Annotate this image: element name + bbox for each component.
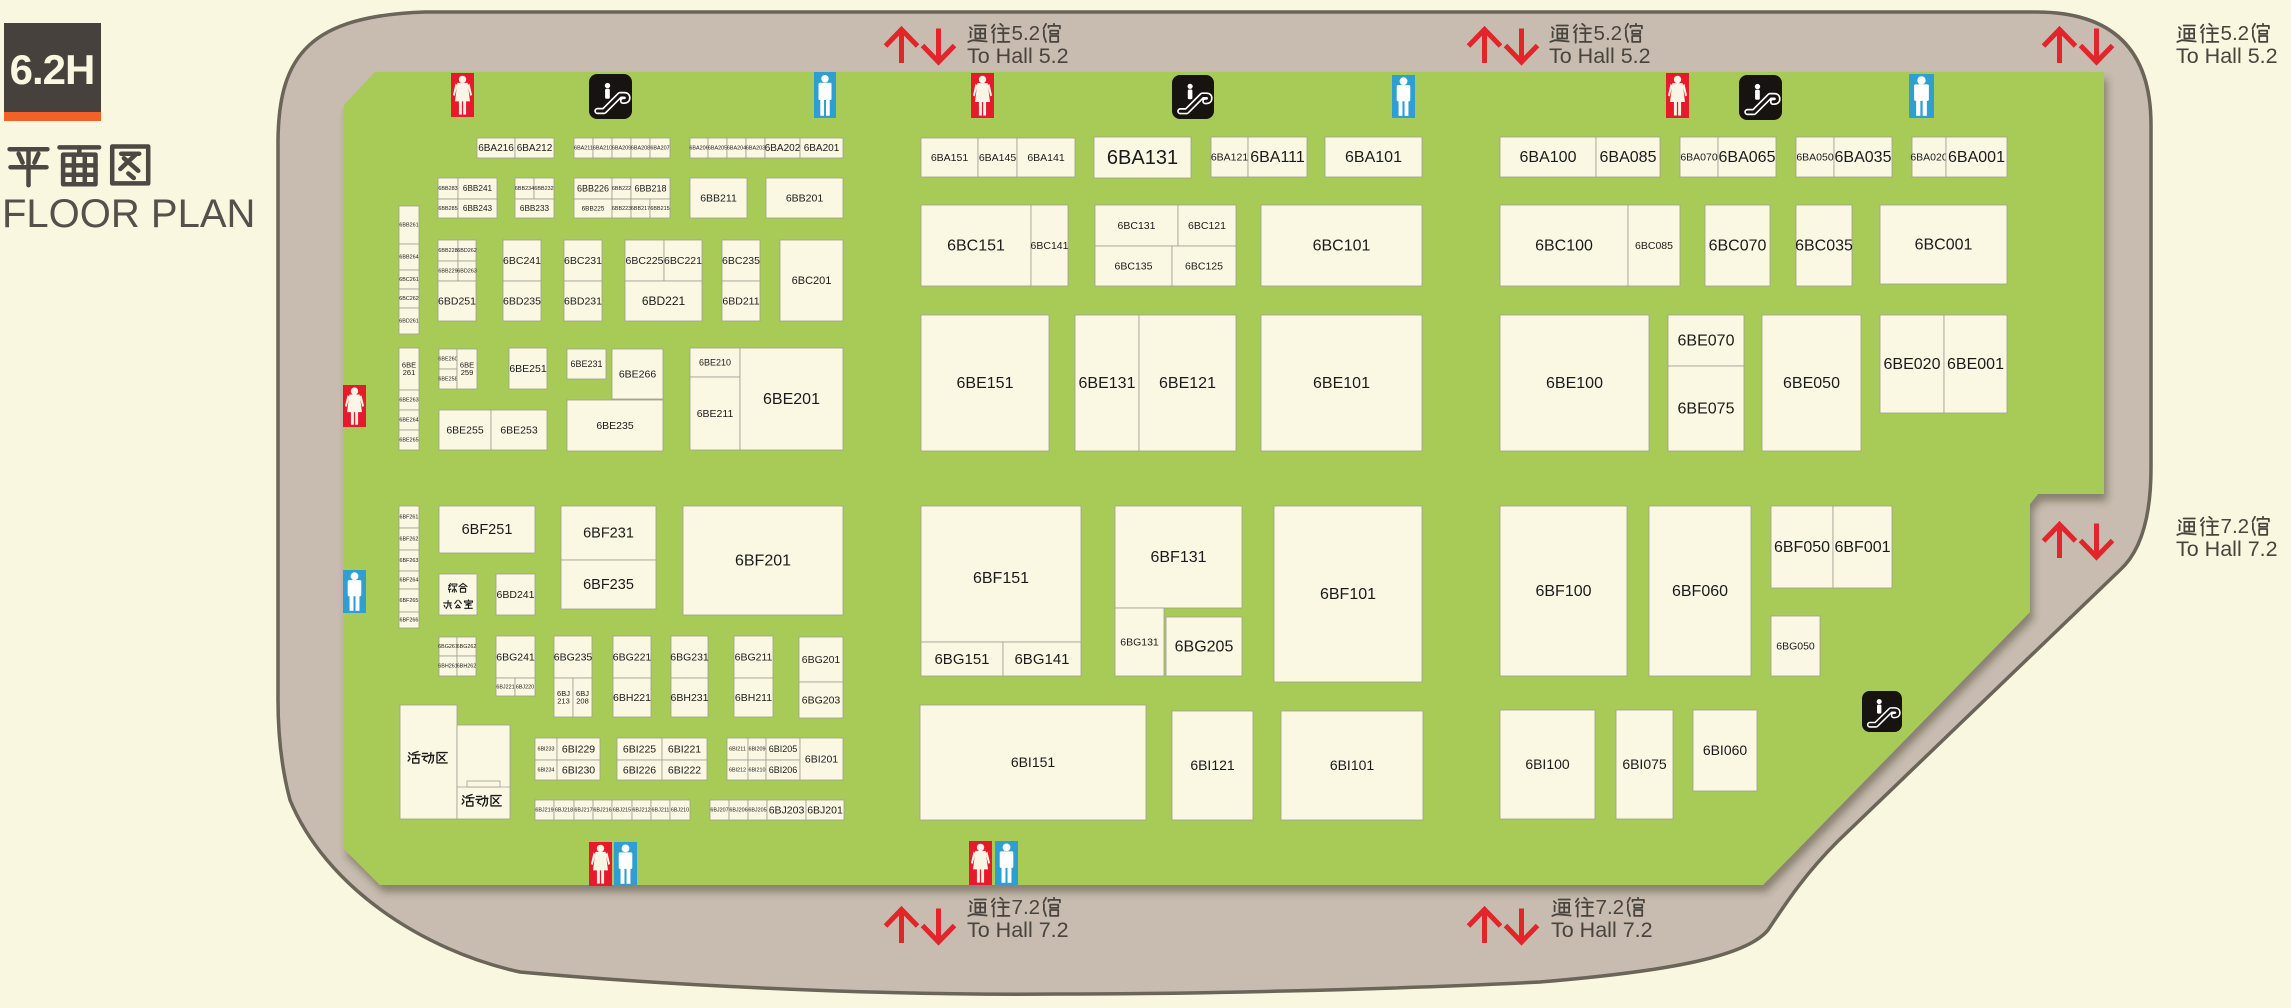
svg-text:6BD241: 6BD241 (497, 589, 535, 601)
svg-text:6BC131: 6BC131 (1118, 220, 1156, 232)
svg-text:6BJ203: 6BJ203 (769, 804, 805, 816)
svg-text:6BE210: 6BE210 (699, 357, 731, 367)
svg-text:6BG205: 6BG205 (1175, 639, 1234, 656)
svg-text:6BJ205: 6BJ205 (748, 808, 766, 814)
svg-text:6BI233: 6BI233 (537, 747, 554, 753)
svg-text:6BA085: 6BA085 (1600, 149, 1657, 166)
svg-text:6BE231: 6BE231 (570, 359, 602, 369)
svg-text:6BA121: 6BA121 (1211, 151, 1249, 163)
svg-text:6BB228: 6BB228 (438, 248, 457, 254)
svg-text:6BE251: 6BE251 (509, 363, 547, 375)
svg-text:6BA101: 6BA101 (1345, 149, 1402, 166)
svg-text:6BD231: 6BD231 (564, 295, 602, 307)
svg-text:To Hall 5.2: To Hall 5.2 (1549, 44, 1651, 68)
svg-text:6BI229: 6BI229 (562, 743, 595, 755)
svg-text:6BE211: 6BE211 (697, 408, 734, 420)
svg-text:6BF060: 6BF060 (1672, 583, 1728, 600)
svg-text:6BG151: 6BG151 (934, 651, 989, 668)
svg-text:6BI234: 6BI234 (537, 768, 554, 774)
svg-text:6BF262: 6BF262 (400, 537, 419, 543)
svg-text:6BH231: 6BH231 (671, 692, 709, 704)
svg-text:7.2: 7.2 (2221, 515, 2250, 538)
svg-text:6BA141: 6BA141 (1027, 152, 1065, 164)
svg-text:FLOOR PLAN: FLOOR PLAN (2, 192, 255, 236)
svg-text:6BJ220: 6BJ220 (516, 685, 534, 691)
svg-text:To Hall 7.2: To Hall 7.2 (1551, 918, 1653, 942)
svg-text:6BI226: 6BI226 (623, 764, 656, 776)
svg-text:6BI225: 6BI225 (623, 743, 656, 755)
svg-text:6BG050: 6BG050 (1776, 640, 1815, 652)
svg-text:6BE001: 6BE001 (1947, 356, 2004, 373)
svg-text:6BF151: 6BF151 (973, 570, 1029, 587)
svg-text:6BE235: 6BE235 (596, 420, 634, 432)
svg-text:6BG141: 6BG141 (1014, 651, 1069, 668)
svg-text:6BJ216: 6BJ216 (593, 808, 611, 814)
svg-text:6BA111: 6BA111 (1250, 149, 1305, 166)
svg-text:6BI210: 6BI210 (748, 768, 765, 774)
svg-text:6BA212: 6BA212 (517, 143, 553, 154)
svg-text:6BA151: 6BA151 (931, 152, 969, 164)
svg-text:6BJ211: 6BJ211 (652, 808, 670, 814)
svg-text:6BB211: 6BB211 (700, 192, 737, 204)
svg-text:6BC135: 6BC135 (1115, 260, 1153, 272)
svg-text:6BG131: 6BG131 (1120, 636, 1159, 648)
svg-text:6BG241: 6BG241 (496, 651, 535, 663)
svg-text:6BF251: 6BF251 (462, 522, 513, 538)
svg-text:6BE258: 6BE258 (438, 377, 457, 383)
svg-text:6BE075: 6BE075 (1678, 401, 1735, 418)
svg-text:6BB222: 6BB222 (612, 186, 631, 192)
svg-text:5.2: 5.2 (2221, 22, 2250, 45)
svg-text:To Hall 7.2: To Hall 7.2 (967, 918, 1069, 942)
svg-text:6BE201: 6BE201 (763, 391, 820, 408)
svg-text:261: 261 (403, 368, 416, 377)
svg-text:6BC085: 6BC085 (1635, 240, 1673, 252)
svg-text:6BA035: 6BA035 (1835, 149, 1892, 166)
svg-text:6BB243: 6BB243 (463, 204, 493, 213)
svg-text:6BB241: 6BB241 (463, 184, 493, 193)
svg-text:6BB232: 6BB232 (534, 186, 553, 192)
svg-text:7.2: 7.2 (1596, 896, 1625, 919)
svg-text:6BA205: 6BA205 (708, 146, 727, 152)
svg-text:6BJ207: 6BJ207 (710, 808, 728, 814)
svg-text:6BB233: 6BB233 (520, 204, 550, 213)
svg-text:6BC235: 6BC235 (722, 255, 760, 267)
svg-text:6BG211: 6BG211 (735, 651, 773, 663)
svg-text:6BJ217: 6BJ217 (574, 808, 592, 814)
svg-text:6BB218: 6BB218 (634, 183, 666, 193)
svg-text:6BF050: 6BF050 (1774, 539, 1830, 556)
svg-text:6BC125: 6BC125 (1185, 260, 1223, 272)
svg-text:6BF261: 6BF261 (400, 515, 419, 521)
svg-text:6BI221: 6BI221 (668, 743, 701, 755)
svg-text:6BB264: 6BB264 (399, 255, 418, 261)
svg-text:6BH261: 6BH261 (438, 664, 457, 670)
svg-text:6BA211: 6BA211 (574, 146, 593, 152)
svg-text:6BC261: 6BC261 (399, 277, 418, 283)
svg-text:6BA001: 6BA001 (1948, 149, 2005, 166)
svg-text:259: 259 (461, 368, 474, 377)
svg-text:6BI209: 6BI209 (748, 747, 765, 753)
svg-text:208: 208 (576, 697, 589, 706)
svg-text:5.2: 5.2 (1012, 22, 1041, 45)
svg-text:6BF263: 6BF263 (400, 558, 419, 564)
svg-text:6BB229: 6BB229 (438, 269, 457, 275)
svg-text:6BA207: 6BA207 (650, 146, 669, 152)
svg-text:6BI211: 6BI211 (729, 747, 746, 753)
svg-text:6BA206: 6BA206 (689, 146, 708, 152)
svg-text:To Hall 7.2: To Hall 7.2 (2176, 537, 2278, 561)
svg-text:6BE260: 6BE260 (438, 357, 457, 363)
svg-text:6BE265: 6BE265 (399, 438, 418, 444)
svg-text:6BD221: 6BD221 (642, 294, 686, 308)
svg-text:6BF235: 6BF235 (583, 577, 634, 593)
svg-text:6BB225: 6BB225 (582, 205, 605, 212)
svg-text:6BC231: 6BC231 (564, 255, 602, 267)
svg-text:6BJ210: 6BJ210 (671, 808, 689, 814)
svg-text:6BG262: 6BG262 (457, 644, 477, 650)
svg-text:6BD262: 6BD262 (457, 248, 476, 254)
svg-text:6BD251: 6BD251 (438, 295, 476, 307)
svg-text:6BG235: 6BG235 (554, 651, 593, 663)
svg-text:6BA020: 6BA020 (1910, 151, 1948, 163)
svg-text:6BD261: 6BD261 (399, 319, 418, 325)
svg-text:6BA201: 6BA201 (804, 143, 840, 154)
svg-text:6BJ201: 6BJ201 (807, 804, 843, 816)
svg-text:6BA050: 6BA050 (1796, 151, 1834, 163)
svg-text:To Hall 5.2: To Hall 5.2 (2176, 44, 2278, 68)
svg-text:6BH211: 6BH211 (735, 692, 772, 704)
svg-text:6BA100: 6BA100 (1520, 149, 1577, 166)
svg-text:6BB261: 6BB261 (399, 223, 418, 229)
svg-text:6BF265: 6BF265 (400, 598, 419, 604)
svg-text:6BF101: 6BF101 (1320, 586, 1376, 603)
svg-text:6BG261: 6BG261 (438, 644, 458, 650)
svg-text:6BC141: 6BC141 (1031, 240, 1069, 252)
svg-text:6BC070: 6BC070 (1709, 238, 1767, 255)
svg-text:6BE131: 6BE131 (1079, 375, 1136, 392)
svg-text:6BI101: 6BI101 (1330, 757, 1375, 773)
svg-text:6BA145: 6BA145 (979, 152, 1017, 164)
svg-text:213: 213 (557, 697, 570, 706)
svg-text:6BI100: 6BI100 (1525, 756, 1570, 772)
svg-text:6BD235: 6BD235 (503, 295, 541, 307)
svg-text:6BJ221: 6BJ221 (496, 685, 514, 691)
svg-text:6BE263: 6BE263 (399, 398, 418, 404)
svg-text:6BB226: 6BB226 (577, 183, 609, 193)
svg-text:6BC035: 6BC035 (1795, 238, 1853, 255)
svg-text:6BI222: 6BI222 (668, 764, 701, 776)
svg-text:6BG231: 6BG231 (670, 651, 709, 663)
svg-text:6BE100: 6BE100 (1546, 375, 1603, 392)
svg-text:6BE253: 6BE253 (500, 424, 538, 436)
svg-text:6BH221: 6BH221 (613, 692, 651, 704)
svg-text:6BB234: 6BB234 (515, 186, 534, 192)
svg-text:6BD263: 6BD263 (457, 269, 476, 275)
svg-text:6BB217: 6BB217 (631, 206, 650, 212)
svg-text:6BA204: 6BA204 (727, 146, 746, 152)
svg-text:6BI230: 6BI230 (562, 764, 595, 776)
svg-text:6BF266: 6BF266 (400, 618, 419, 624)
svg-text:6BJ206: 6BJ206 (729, 808, 747, 814)
svg-text:6BE070: 6BE070 (1678, 333, 1735, 350)
svg-text:6BA203: 6BA203 (746, 146, 765, 152)
svg-text:6BE050: 6BE050 (1783, 375, 1840, 392)
svg-text:6BC225: 6BC225 (626, 255, 664, 267)
svg-text:6BI206: 6BI206 (769, 765, 798, 775)
svg-text:6BG203: 6BG203 (802, 694, 841, 706)
svg-text:6BC201: 6BC201 (792, 275, 832, 287)
svg-text:To Hall 5.2: To Hall 5.2 (967, 44, 1069, 68)
svg-text:5.2: 5.2 (1594, 22, 1623, 45)
svg-text:6BI201: 6BI201 (805, 753, 838, 765)
svg-text:6BE101: 6BE101 (1313, 375, 1370, 392)
svg-text:6BC221: 6BC221 (664, 255, 702, 267)
svg-text:6.2H: 6.2H (10, 46, 95, 93)
svg-text:6BG221: 6BG221 (613, 651, 652, 663)
svg-text:6BI205: 6BI205 (769, 744, 798, 754)
svg-text:6BC101: 6BC101 (1313, 238, 1371, 255)
svg-text:6BF201: 6BF201 (735, 553, 791, 570)
svg-text:6BE121: 6BE121 (1159, 375, 1216, 392)
svg-text:6BA131: 6BA131 (1107, 147, 1178, 169)
svg-text:6BJ215: 6BJ215 (613, 808, 631, 814)
svg-text:6BI060: 6BI060 (1703, 742, 1748, 758)
svg-text:6BG201: 6BG201 (802, 654, 841, 666)
svg-text:6BI121: 6BI121 (1190, 757, 1235, 773)
svg-text:6BB201: 6BB201 (786, 192, 824, 204)
svg-text:6BJ219: 6BJ219 (535, 808, 553, 814)
svg-text:6BB283: 6BB283 (438, 186, 457, 192)
svg-text:6BC121: 6BC121 (1188, 220, 1226, 232)
svg-text:6BD211: 6BD211 (722, 295, 759, 307)
svg-text:6BE264: 6BE264 (399, 418, 418, 424)
svg-text:6BI075: 6BI075 (1622, 756, 1667, 772)
svg-text:6BC151: 6BC151 (947, 238, 1005, 255)
svg-text:6BA216: 6BA216 (478, 143, 514, 154)
svg-text:6BE255: 6BE255 (446, 424, 484, 436)
svg-text:6BE266: 6BE266 (619, 368, 657, 380)
svg-text:6BB223: 6BB223 (612, 206, 631, 212)
svg-text:6BA208: 6BA208 (631, 146, 650, 152)
svg-text:6BA209: 6BA209 (612, 146, 631, 152)
svg-text:6BA202: 6BA202 (765, 143, 801, 154)
svg-text:6BC001: 6BC001 (1915, 237, 1973, 254)
svg-text:6BI212: 6BI212 (729, 768, 746, 774)
svg-text:7.2: 7.2 (1012, 896, 1041, 919)
svg-text:6BC262: 6BC262 (399, 296, 418, 302)
svg-text:6BF100: 6BF100 (1535, 583, 1591, 600)
svg-text:6BC241: 6BC241 (503, 255, 541, 267)
svg-text:6BB215: 6BB215 (650, 206, 669, 212)
svg-text:6BA065: 6BA065 (1719, 149, 1776, 166)
svg-text:6BF231: 6BF231 (583, 526, 634, 542)
svg-text:6BJ218: 6BJ218 (555, 808, 573, 814)
svg-text:6BC100: 6BC100 (1535, 238, 1593, 255)
svg-text:6BA070: 6BA070 (1680, 151, 1718, 163)
svg-text:6BA210: 6BA210 (593, 146, 612, 152)
svg-text:6BE020: 6BE020 (1884, 356, 1941, 373)
svg-text:6BB285: 6BB285 (438, 206, 457, 212)
svg-text:6BF131: 6BF131 (1150, 549, 1206, 566)
svg-text:6BF264: 6BF264 (400, 578, 419, 584)
svg-text:6BF001: 6BF001 (1834, 539, 1890, 556)
svg-text:6BI151: 6BI151 (1011, 754, 1056, 770)
svg-text:6BE151: 6BE151 (957, 375, 1014, 392)
svg-text:6BJ212: 6BJ212 (632, 808, 650, 814)
svg-text:6BH262: 6BH262 (457, 664, 476, 670)
